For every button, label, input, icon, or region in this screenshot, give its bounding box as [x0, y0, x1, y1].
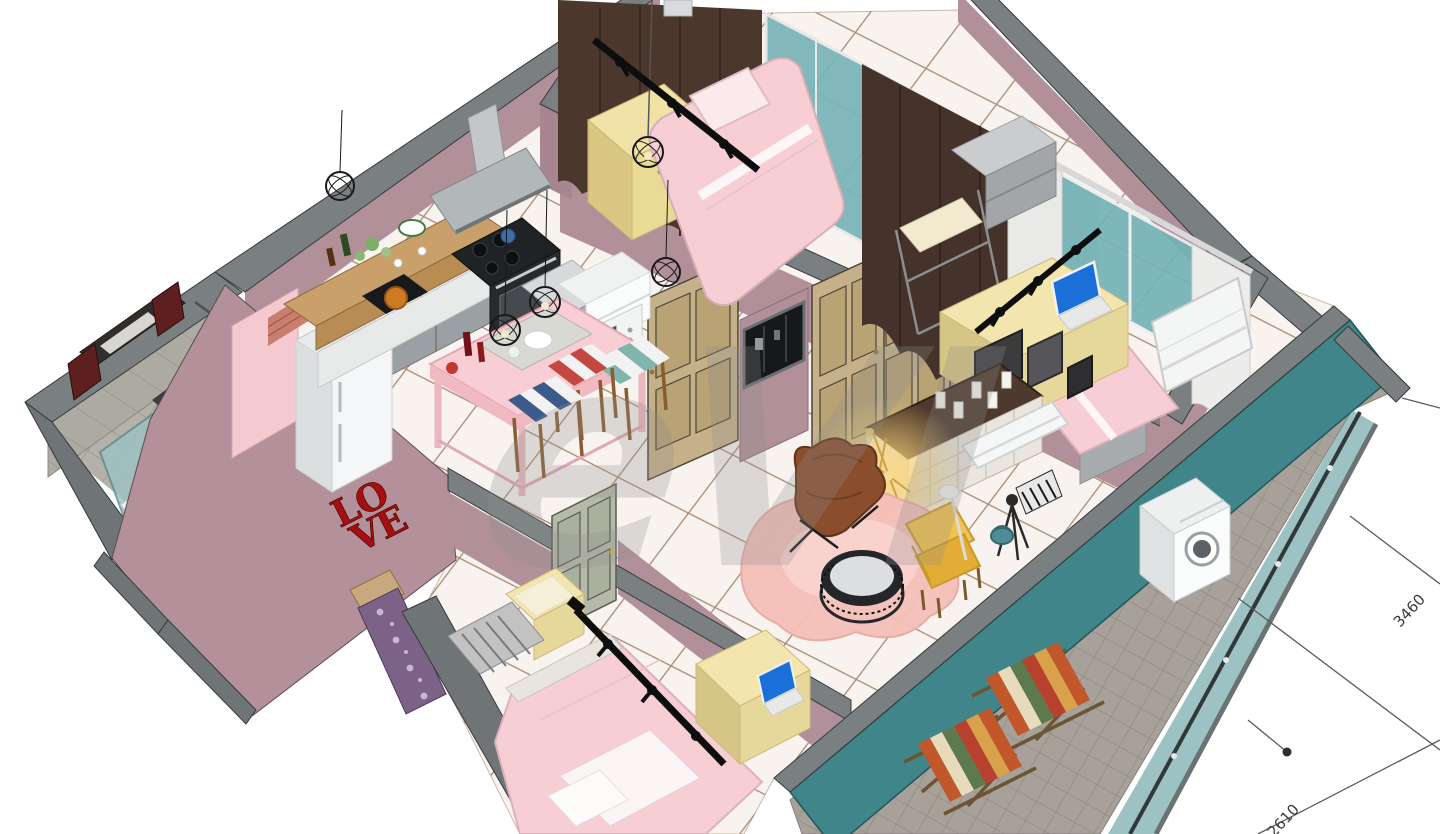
watermark: eVI [463, 287, 1015, 636]
dim-label-side: 3460 [1390, 590, 1429, 630]
red-cup [446, 362, 458, 374]
bucket [991, 526, 1013, 544]
dim-line-corner [1402, 398, 1440, 408]
floorplan-render: LO VE [0, 0, 1440, 834]
dim-tick [1248, 720, 1287, 752]
plate [399, 220, 425, 236]
floorplan-svg: LO VE [0, 0, 1440, 834]
watermark-text: eVI [463, 287, 1015, 636]
orange-pot [385, 287, 407, 309]
dim-label-bottom: 2610 [1264, 800, 1303, 834]
dim-endpoint-dot [1283, 748, 1292, 757]
dim-line-upper [1350, 516, 1440, 584]
blue-pot [501, 229, 515, 243]
